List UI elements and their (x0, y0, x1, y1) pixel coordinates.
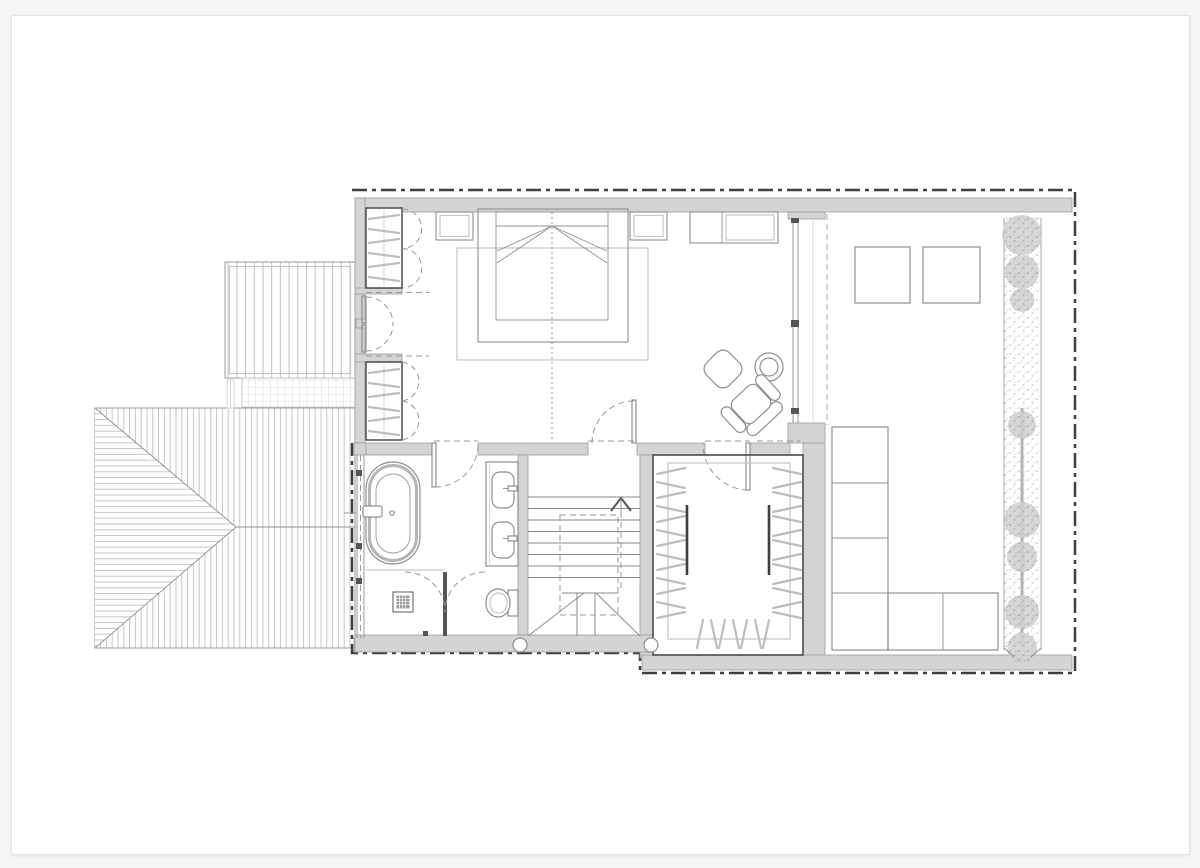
closet-hanger-ticks-right (773, 468, 801, 618)
hip-roof (95, 408, 355, 648)
rug (457, 248, 648, 360)
terrace (791, 214, 1042, 663)
nightstand-right (630, 212, 667, 240)
toilet (486, 589, 518, 617)
nightstand-left (436, 212, 473, 240)
column (513, 638, 527, 652)
wardrobe-upper (366, 208, 422, 288)
column (644, 638, 658, 652)
floor-plan-drawing (0, 0, 1200, 868)
shower-drain (393, 592, 413, 612)
bathroom-door (432, 443, 478, 487)
bedroom-door (592, 400, 636, 443)
wardrobe-lower (366, 362, 419, 440)
planter-modules (832, 427, 998, 650)
closet-hanger-ticks-bottom (697, 620, 769, 648)
stair-void-dashed (560, 515, 618, 615)
bathroom (363, 462, 518, 636)
terrace-glazing (791, 218, 813, 423)
bathtub-faucet (363, 506, 382, 517)
ottoman (700, 346, 745, 391)
bed (478, 209, 628, 440)
french-door (362, 296, 393, 352)
vanity (486, 462, 518, 566)
stairs (528, 497, 640, 636)
closet-door (703, 443, 750, 490)
trellis-grid (242, 378, 355, 407)
skylight-left (855, 247, 910, 303)
deck (225, 262, 355, 408)
bathtub (363, 462, 420, 564)
dresser (690, 212, 778, 243)
section-outline (352, 190, 1075, 673)
plant-strip (1002, 215, 1042, 663)
stair-up-arrow (611, 498, 631, 590)
closet-hanger-ticks-left (657, 468, 685, 618)
floor-plan-stage (0, 0, 1200, 868)
shower-partition (443, 572, 447, 636)
shower (366, 570, 485, 636)
skylight-right (923, 247, 980, 303)
walls (354, 198, 1072, 670)
bedroom (362, 208, 790, 443)
